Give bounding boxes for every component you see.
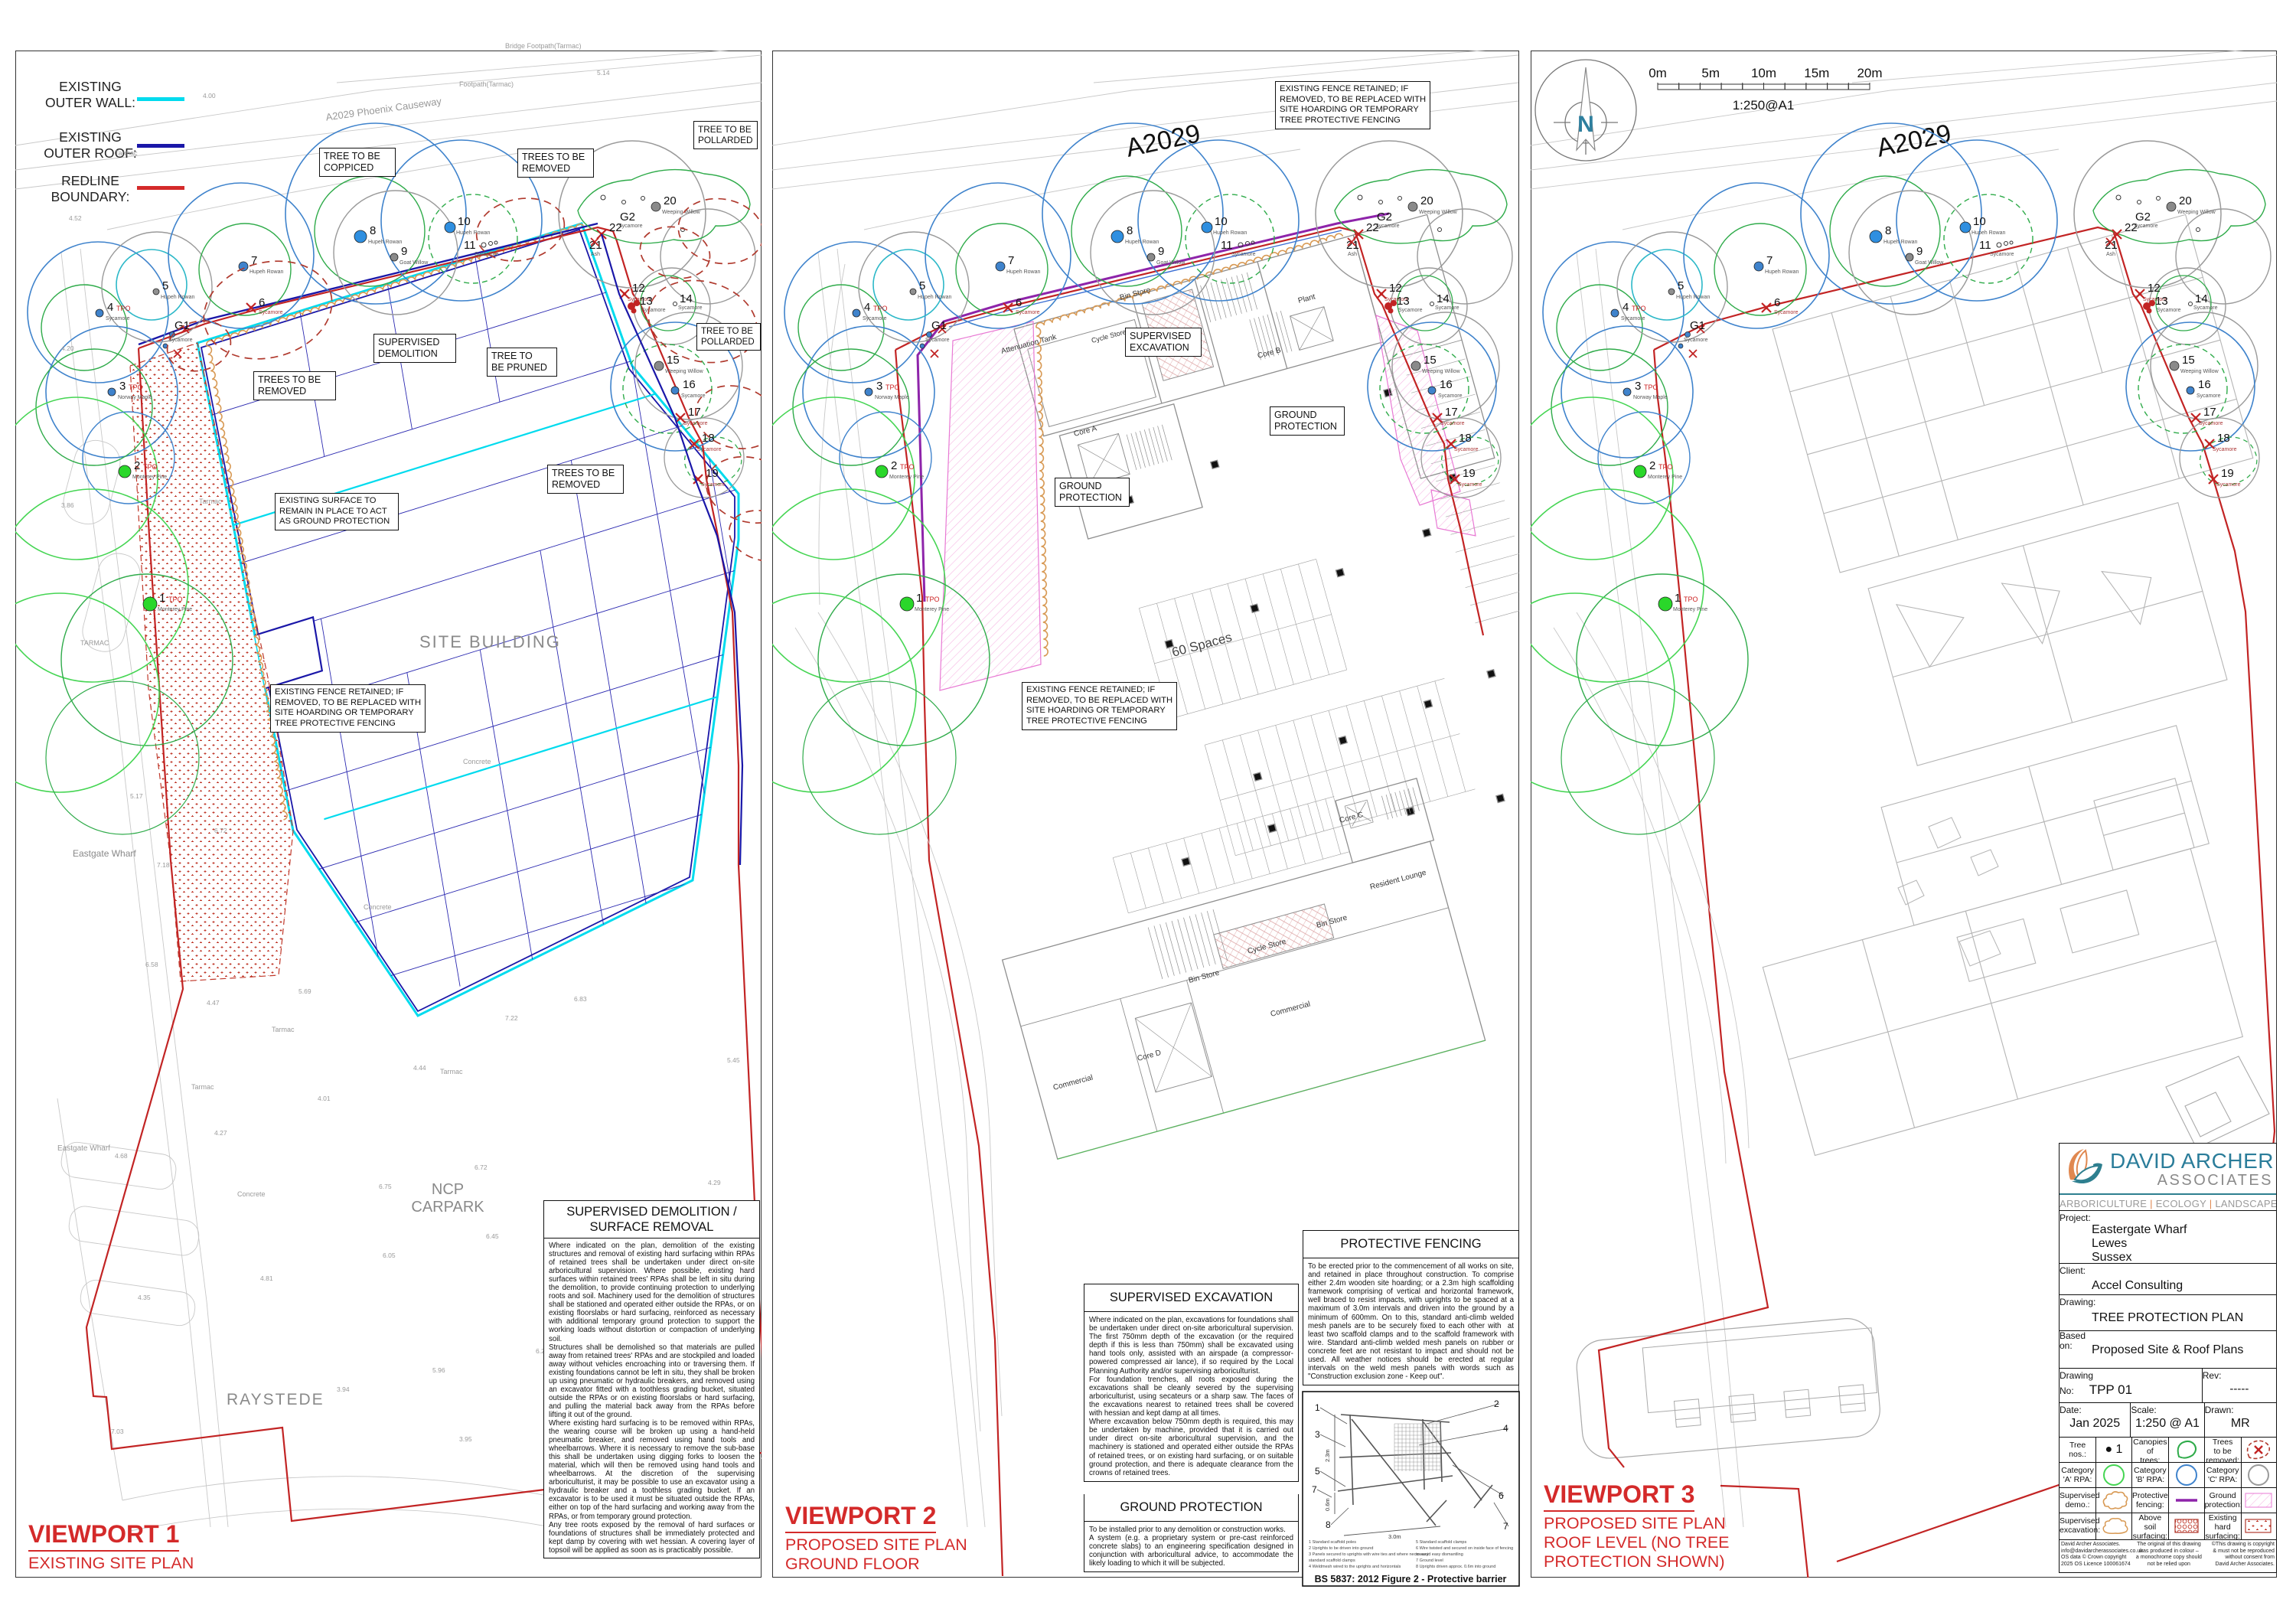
svg-text:Sycamore: Sycamore bbox=[1684, 338, 1708, 343]
svg-text:Sycamore: Sycamore bbox=[701, 482, 726, 488]
svg-text:Sycamore: Sycamore bbox=[1621, 316, 1645, 321]
svg-text:2: 2 bbox=[1494, 1398, 1499, 1409]
svg-text:Hupeh Rowan: Hupeh Rowan bbox=[918, 295, 951, 300]
svg-text:TPO: TPO bbox=[116, 305, 131, 312]
svg-text:Sycamore: Sycamore bbox=[1016, 310, 1040, 315]
svg-text:Sycamore: Sycamore bbox=[1435, 305, 1459, 311]
svg-text:5: 5 bbox=[1678, 279, 1684, 292]
svg-text:1:250@A1: 1:250@A1 bbox=[1733, 98, 1795, 113]
svg-text:TPO: TPO bbox=[1684, 596, 1698, 603]
svg-text:12: 12 bbox=[2148, 282, 2161, 295]
svg-text:Sycamore: Sycamore bbox=[1231, 252, 1256, 257]
svg-text:Core A: Core A bbox=[1073, 424, 1098, 439]
svg-text:Hupeh Rowan: Hupeh Rowan bbox=[1125, 240, 1159, 245]
svg-text:12: 12 bbox=[632, 282, 645, 295]
svg-text:Ash: Ash bbox=[2106, 252, 2115, 257]
svg-text:TPO: TPO bbox=[885, 383, 900, 391]
svg-text:4 Weldmesh wired to the uprigh: 4 Weldmesh wired to the uprights and hor… bbox=[1309, 1565, 1401, 1569]
svg-text:14: 14 bbox=[2195, 292, 2208, 305]
svg-text:6: 6 bbox=[1016, 296, 1022, 309]
svg-text:TPO: TPO bbox=[1632, 305, 1646, 312]
svg-text:8: 8 bbox=[1326, 1519, 1331, 1530]
svg-text:G2: G2 bbox=[1377, 211, 1392, 224]
svg-text:9: 9 bbox=[401, 245, 407, 258]
svg-text:1 Standard scaffold poles: 1 Standard scaffold poles bbox=[1309, 1540, 1356, 1545]
svg-text:3: 3 bbox=[1315, 1429, 1320, 1440]
svg-text:18: 18 bbox=[702, 432, 715, 445]
svg-text:5: 5 bbox=[1315, 1466, 1320, 1477]
svg-text:10: 10 bbox=[1973, 215, 1986, 228]
svg-text:Commercial: Commercial bbox=[1052, 1073, 1094, 1092]
svg-text:Monterey Pine: Monterey Pine bbox=[1648, 475, 1682, 480]
svg-text:Core B: Core B bbox=[1257, 346, 1282, 361]
svg-text:Ash: Ash bbox=[1348, 252, 1357, 257]
svg-text:Sycamore: Sycamore bbox=[618, 224, 643, 229]
svg-text:Hupeh Rowan: Hupeh Rowan bbox=[249, 269, 283, 275]
svg-text:5: 5 bbox=[919, 279, 925, 292]
svg-text:G2: G2 bbox=[620, 211, 635, 224]
svg-text:Plant: Plant bbox=[1297, 292, 1316, 305]
svg-text:Bin Store: Bin Store bbox=[1119, 286, 1152, 302]
svg-text:Hupeh Rowan: Hupeh Rowan bbox=[456, 230, 490, 236]
svg-text:5 Standard scaffold clamps: 5 Standard scaffold clamps bbox=[1416, 1540, 1466, 1545]
svg-text:Hupeh Rowan: Hupeh Rowan bbox=[368, 240, 402, 245]
svg-text:Norway Maple: Norway Maple bbox=[118, 395, 152, 400]
svg-text:Hupeh Rowan: Hupeh Rowan bbox=[1765, 269, 1799, 275]
svg-text:0m: 0m bbox=[1649, 66, 1667, 80]
svg-text:13: 13 bbox=[1397, 295, 1410, 308]
svg-text:Sycamore: Sycamore bbox=[2157, 308, 2181, 313]
svg-text:7: 7 bbox=[1766, 254, 1773, 267]
svg-text:standard scaffold clamps: standard scaffold clamps bbox=[1309, 1558, 1355, 1563]
svg-text:Sycamore: Sycamore bbox=[106, 316, 130, 321]
svg-text:10: 10 bbox=[1215, 215, 1228, 228]
svg-text:Sycamore: Sycamore bbox=[925, 338, 950, 343]
svg-text:3: 3 bbox=[1635, 380, 1641, 393]
svg-text:Sycamore: Sycamore bbox=[2199, 421, 2223, 426]
svg-text:G1: G1 bbox=[1690, 319, 1705, 332]
svg-text:Weeping Willow: Weeping Willow bbox=[662, 210, 701, 215]
svg-text:Sycamore: Sycamore bbox=[168, 338, 193, 343]
svg-text:G1: G1 bbox=[931, 319, 947, 332]
svg-text:7 Ground level: 7 Ground level bbox=[1416, 1558, 1443, 1563]
svg-text:1: 1 bbox=[159, 592, 165, 605]
svg-text:3 Panels secured to uprights w: 3 Panels secured to uprights with wire t… bbox=[1309, 1552, 1429, 1557]
svg-text:20: 20 bbox=[1420, 194, 1433, 207]
svg-text:Norway Maple: Norway Maple bbox=[1633, 395, 1668, 400]
svg-text:Monterey Pine: Monterey Pine bbox=[889, 475, 924, 480]
svg-text:G1: G1 bbox=[174, 319, 190, 332]
svg-text:Goat Willow: Goat Willow bbox=[1156, 260, 1186, 266]
svg-text:Sycamore: Sycamore bbox=[697, 447, 722, 452]
svg-text:10m: 10m bbox=[1751, 66, 1776, 80]
svg-text:0.6m: 0.6m bbox=[1324, 1498, 1331, 1511]
svg-text:Sycamore: Sycamore bbox=[2197, 393, 2221, 399]
svg-text:5: 5 bbox=[162, 279, 168, 292]
svg-text:TPO: TPO bbox=[873, 305, 888, 312]
svg-text:19: 19 bbox=[1463, 467, 1476, 480]
svg-text:Sycamore: Sycamore bbox=[2213, 447, 2237, 452]
svg-text:18: 18 bbox=[2217, 432, 2230, 445]
svg-text:Weeping Willow: Weeping Willow bbox=[1422, 369, 1461, 374]
svg-text:9: 9 bbox=[1158, 245, 1164, 258]
svg-text:3: 3 bbox=[119, 380, 126, 393]
svg-text:Goat Willow: Goat Willow bbox=[1915, 260, 1944, 266]
svg-text:Goat Willow: Goat Willow bbox=[400, 260, 429, 266]
svg-text:14: 14 bbox=[680, 292, 693, 305]
svg-text:12: 12 bbox=[1389, 282, 1402, 295]
svg-text:Monterey Pine: Monterey Pine bbox=[132, 475, 167, 480]
svg-text:Core C: Core C bbox=[1339, 811, 1364, 825]
svg-text:13: 13 bbox=[2155, 295, 2168, 308]
svg-text:Hupeh Rowan: Hupeh Rowan bbox=[161, 295, 194, 300]
svg-text:6: 6 bbox=[259, 296, 265, 309]
svg-text:Hupeh Rowan: Hupeh Rowan bbox=[1971, 230, 2005, 236]
svg-text:2: 2 bbox=[891, 459, 897, 472]
svg-text:8: 8 bbox=[1127, 224, 1133, 237]
svg-text:3: 3 bbox=[876, 380, 882, 393]
svg-text:Sycamore: Sycamore bbox=[1438, 393, 1463, 399]
svg-text:16: 16 bbox=[1440, 378, 1453, 391]
svg-text:Sycamore: Sycamore bbox=[1440, 421, 1465, 426]
svg-text:Sycamore: Sycamore bbox=[2193, 305, 2218, 311]
svg-text:A2029: A2029 bbox=[1124, 119, 1203, 163]
svg-text:TPO: TPO bbox=[925, 596, 940, 603]
svg-text:16: 16 bbox=[683, 378, 696, 391]
svg-text:Sycamore: Sycamore bbox=[1990, 252, 2014, 257]
svg-text:7: 7 bbox=[1503, 1521, 1508, 1532]
svg-text:1: 1 bbox=[916, 592, 922, 605]
svg-text:3.0m: 3.0m bbox=[1388, 1533, 1401, 1540]
svg-text:17: 17 bbox=[2203, 406, 2216, 419]
svg-text:Sycamore: Sycamore bbox=[1398, 308, 1423, 313]
svg-text:11: 11 bbox=[464, 239, 476, 252]
svg-text:2 Uprights to be driven into g: 2 Uprights to be driven into ground bbox=[1309, 1546, 1373, 1551]
svg-text:1: 1 bbox=[1675, 592, 1681, 605]
svg-text:6: 6 bbox=[1774, 296, 1780, 309]
svg-text:16: 16 bbox=[2198, 378, 2211, 391]
svg-text:Sycamore: Sycamore bbox=[1454, 447, 1479, 452]
svg-text:15: 15 bbox=[667, 354, 680, 367]
svg-text:17: 17 bbox=[688, 406, 701, 419]
svg-text:TPO: TPO bbox=[900, 463, 915, 471]
svg-text:4: 4 bbox=[1623, 301, 1629, 314]
svg-text:2: 2 bbox=[134, 459, 140, 472]
svg-text:Sycamore: Sycamore bbox=[683, 421, 708, 426]
svg-text:TPO: TPO bbox=[168, 596, 183, 603]
svg-text:1: 1 bbox=[1315, 1402, 1320, 1413]
svg-text:18: 18 bbox=[1459, 432, 1472, 445]
svg-text:19: 19 bbox=[2221, 467, 2234, 480]
svg-text:60 Spaces: 60 Spaces bbox=[1170, 630, 1234, 660]
svg-text:Hupeh Rowan: Hupeh Rowan bbox=[1676, 295, 1710, 300]
svg-text:20m: 20m bbox=[1857, 66, 1882, 80]
svg-text:15: 15 bbox=[2182, 354, 2195, 367]
svg-text:10: 10 bbox=[458, 215, 471, 228]
svg-text:Sycamore: Sycamore bbox=[863, 316, 887, 321]
svg-text:2.3m: 2.3m bbox=[1324, 1449, 1331, 1462]
svg-text:14: 14 bbox=[1437, 292, 1450, 305]
svg-text:Sycamore: Sycamore bbox=[475, 252, 499, 257]
svg-text:15m: 15m bbox=[1804, 66, 1829, 80]
svg-text:Weeping Willow: Weeping Willow bbox=[2177, 210, 2216, 215]
svg-text:20: 20 bbox=[2179, 194, 2192, 207]
svg-text:Sycamore: Sycamore bbox=[2216, 482, 2241, 488]
svg-text:TPO: TPO bbox=[1658, 463, 1673, 471]
svg-text:Core D: Core D bbox=[1137, 1049, 1162, 1063]
svg-text:4: 4 bbox=[864, 301, 870, 314]
svg-text:Sycamore: Sycamore bbox=[681, 393, 706, 399]
svg-text:Weeping Willow: Weeping Willow bbox=[665, 369, 704, 374]
svg-text:8 Uprights driven approx. 0.6m: 8 Uprights driven approx. 0.6m into grou… bbox=[1416, 1565, 1495, 1569]
svg-text:TPO: TPO bbox=[129, 383, 143, 391]
svg-text:8: 8 bbox=[370, 224, 376, 237]
svg-text:13: 13 bbox=[640, 295, 653, 308]
svg-text:4: 4 bbox=[107, 301, 113, 314]
svg-text:Weeping Willow: Weeping Willow bbox=[2180, 369, 2219, 374]
svg-text:9: 9 bbox=[1916, 245, 1923, 258]
svg-text:6 Wire twisted and secured on: 6 Wire twisted and secured on inside fac… bbox=[1416, 1546, 1513, 1551]
svg-text:Hupeh Rowan: Hupeh Rowan bbox=[1213, 230, 1247, 236]
svg-text:Weeping Willow: Weeping Willow bbox=[1419, 210, 1458, 215]
svg-text:17: 17 bbox=[1445, 406, 1458, 419]
svg-text:2: 2 bbox=[1649, 459, 1655, 472]
svg-text:Sycamore: Sycamore bbox=[1774, 310, 1799, 315]
svg-text:20: 20 bbox=[664, 194, 677, 207]
svg-text:7: 7 bbox=[1312, 1484, 1317, 1495]
svg-text:11: 11 bbox=[1221, 239, 1233, 252]
svg-text:to avoid easy dismantling: to avoid easy dismantling bbox=[1416, 1552, 1463, 1557]
svg-text:Sycamore: Sycamore bbox=[678, 305, 703, 311]
svg-text:8: 8 bbox=[1885, 224, 1891, 237]
svg-text:7: 7 bbox=[1008, 254, 1014, 267]
svg-text:Sycamore: Sycamore bbox=[1458, 482, 1482, 488]
svg-text:A2029: A2029 bbox=[1874, 119, 1954, 163]
svg-text:6: 6 bbox=[1499, 1490, 1504, 1501]
svg-text:Hupeh Rowan: Hupeh Rowan bbox=[1883, 240, 1917, 245]
svg-text:Sycamore: Sycamore bbox=[259, 310, 283, 315]
svg-text:Resident Lounge: Resident Lounge bbox=[1369, 869, 1427, 892]
svg-text:N: N bbox=[1577, 112, 1594, 137]
svg-text:Ash: Ash bbox=[591, 252, 600, 257]
svg-text:Hupeh Rowan: Hupeh Rowan bbox=[1006, 269, 1040, 275]
svg-text:Norway Maple: Norway Maple bbox=[875, 395, 909, 400]
svg-text:15: 15 bbox=[1424, 354, 1437, 367]
svg-text:Sycamore: Sycamore bbox=[1375, 224, 1400, 229]
svg-text:TPO: TPO bbox=[143, 463, 158, 471]
svg-text:TPO: TPO bbox=[1644, 383, 1658, 391]
svg-text:Monterey Pine: Monterey Pine bbox=[1673, 607, 1707, 612]
svg-text:5m: 5m bbox=[1701, 66, 1720, 80]
svg-text:G2: G2 bbox=[2135, 211, 2151, 224]
svg-text:11: 11 bbox=[1979, 239, 1991, 252]
svg-text:Sycamore: Sycamore bbox=[2134, 224, 2158, 229]
svg-text:4: 4 bbox=[1503, 1423, 1508, 1434]
svg-text:Bin Store: Bin Store bbox=[1188, 969, 1221, 985]
svg-text:BS 5837: 2012 Figure 2 - Prote: BS 5837: 2012 Figure 2 - Protective barr… bbox=[1315, 1574, 1507, 1584]
svg-text:Commercial: Commercial bbox=[1270, 1000, 1311, 1018]
svg-text:Monterey Pine: Monterey Pine bbox=[158, 607, 192, 612]
svg-text:Monterey Pine: Monterey Pine bbox=[915, 607, 949, 612]
svg-text:Sycamore: Sycamore bbox=[641, 308, 666, 313]
